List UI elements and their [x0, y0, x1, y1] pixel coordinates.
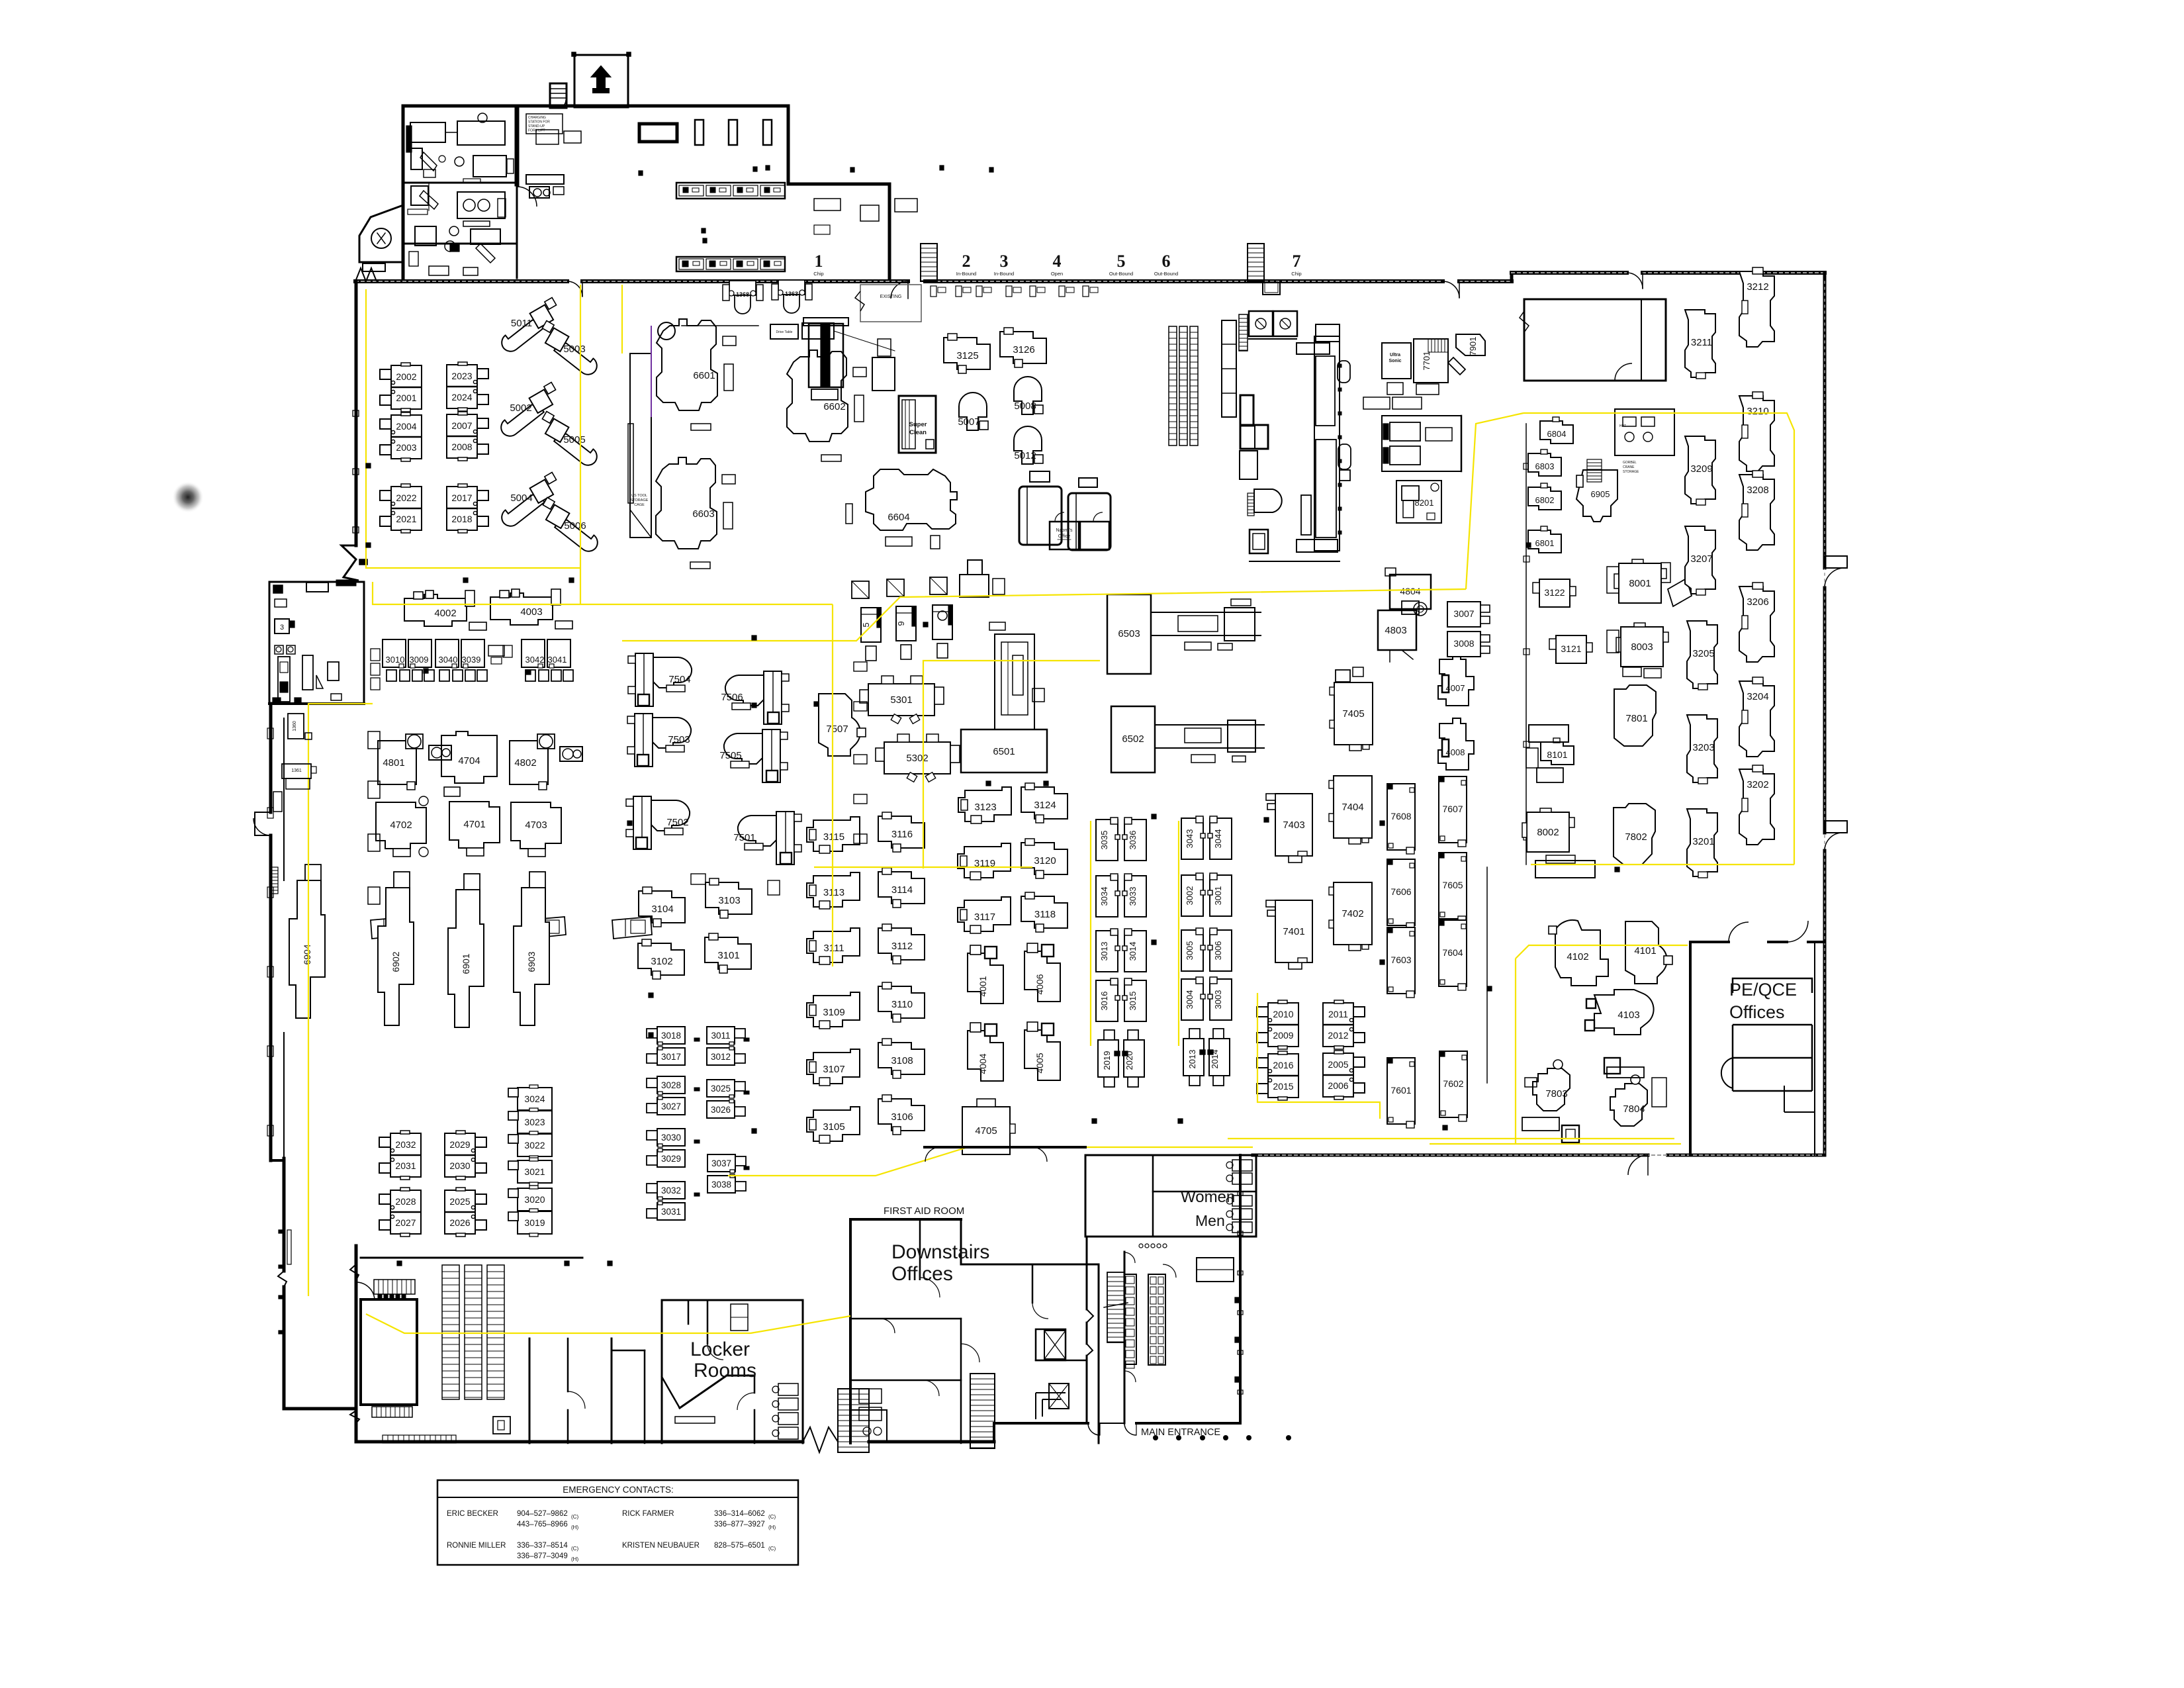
svg-text:3103: 3103: [718, 895, 740, 906]
svg-text:4702: 4702: [390, 820, 412, 831]
svg-text:3020: 3020: [524, 1194, 545, 1205]
svg-text:4802: 4802: [514, 757, 536, 769]
svg-text:(H): (H): [571, 1556, 578, 1562]
svg-text:3030: 3030: [661, 1133, 681, 1143]
svg-text:3: 3: [1000, 252, 1009, 271]
svg-text:7603: 7603: [1390, 955, 1411, 965]
svg-text:5002: 5002: [510, 402, 531, 414]
svg-text:3025: 3025: [711, 1084, 731, 1094]
svg-text:3118: 3118: [1034, 909, 1056, 920]
svg-text:5007: 5007: [958, 416, 979, 428]
svg-text:2004: 2004: [396, 421, 416, 432]
svg-text:2008: 2008: [451, 442, 472, 452]
svg-text:Out-Bound: Out-Bound: [1109, 271, 1133, 277]
svg-text:3024: 3024: [524, 1094, 545, 1104]
svg-text:3117: 3117: [974, 912, 995, 923]
svg-text:3205: 3205: [1692, 648, 1714, 659]
svg-text:3210: 3210: [1747, 406, 1768, 417]
svg-text:2031: 2031: [395, 1160, 416, 1171]
svg-text:2022: 2022: [396, 492, 416, 503]
svg-text:Open: Open: [1051, 271, 1063, 277]
svg-text:4006: 4006: [1034, 974, 1045, 994]
svg-text:3038: 3038: [711, 1180, 731, 1190]
svg-text:(H): (H): [571, 1524, 578, 1530]
svg-text:(H): (H): [768, 1524, 776, 1530]
svg-text:2024: 2024: [451, 392, 472, 402]
svg-text:2016: 2016: [1273, 1060, 1293, 1070]
svg-text:(C): (C): [571, 1546, 578, 1552]
svg-text:4701: 4701: [463, 819, 485, 830]
svg-text:7401: 7401: [1283, 926, 1304, 937]
svg-text:(C): (C): [768, 1546, 776, 1552]
svg-text:3001: 3001: [1213, 886, 1223, 906]
svg-text:3108: 3108: [891, 1055, 913, 1066]
svg-text:4007: 4007: [1446, 683, 1465, 693]
svg-text:3011: 3011: [711, 1031, 730, 1041]
svg-text:Out-Bound: Out-Bound: [1154, 271, 1178, 277]
svg-text:5: 5: [861, 622, 871, 627]
svg-text:6903: 6903: [526, 951, 537, 972]
svg-text:3022: 3022: [524, 1140, 545, 1150]
svg-text:EXISTING: EXISTING: [880, 295, 902, 299]
svg-text:5011: 5011: [511, 318, 532, 329]
svg-text:FIRST AID ROOM: FIRST AID ROOM: [884, 1205, 964, 1217]
svg-text:6601: 6601: [693, 370, 715, 381]
svg-text:6902: 6902: [390, 951, 401, 972]
svg-text:4101: 4101: [1634, 945, 1656, 957]
svg-text:5008: 5008: [1014, 400, 1036, 412]
svg-text:5003: 5003: [563, 344, 585, 355]
svg-text:2007: 2007: [451, 420, 472, 431]
svg-text:Naomi's: Naomi's: [1056, 528, 1073, 533]
svg-text:6: 6: [1162, 252, 1171, 271]
svg-text:Chip: Chip: [1291, 271, 1301, 277]
svg-text:3010: 3010: [386, 655, 405, 665]
svg-text:3110: 3110: [891, 999, 913, 1010]
svg-text:STATION FOR: STATION FOR: [528, 120, 550, 124]
svg-text:3114: 3114: [891, 884, 913, 896]
svg-text:EMERGENCY CONTACTS:: EMERGENCY CONTACTS:: [563, 1485, 674, 1495]
svg-text:3044: 3044: [1213, 829, 1223, 849]
svg-text:3009: 3009: [410, 655, 429, 665]
svg-text:3211: 3211: [1691, 337, 1712, 348]
svg-text:336–877–3049: 336–877–3049: [517, 1552, 568, 1560]
svg-text:3111: 3111: [823, 943, 844, 954]
svg-text:3203: 3203: [1692, 742, 1714, 753]
svg-text:4705: 4705: [975, 1125, 997, 1137]
svg-text:4002: 4002: [434, 608, 456, 619]
svg-text:7803: 7803: [1545, 1088, 1567, 1100]
svg-text:7804: 7804: [1623, 1103, 1645, 1115]
svg-text:7405: 7405: [1342, 708, 1364, 720]
svg-text:In-Bound: In-Bound: [956, 271, 976, 277]
svg-text:3006: 3006: [1213, 941, 1223, 961]
svg-text:3033: 3033: [1128, 887, 1138, 906]
svg-text:2: 2: [962, 252, 971, 271]
svg-text:7506: 7506: [721, 692, 743, 703]
svg-text:3124: 3124: [1034, 800, 1056, 811]
svg-text:7501: 7501: [733, 832, 755, 843]
svg-text:7403: 7403: [1283, 820, 1304, 831]
svg-text:3002: 3002: [1185, 886, 1195, 906]
svg-text:2013: 2013: [1187, 1050, 1197, 1069]
svg-text:3012: 3012: [711, 1052, 731, 1062]
svg-text:3029: 3029: [661, 1154, 681, 1164]
svg-text:3034: 3034: [1099, 887, 1109, 906]
svg-text:2001: 2001: [396, 393, 416, 403]
svg-text:3109: 3109: [823, 1007, 844, 1018]
svg-text:3104: 3104: [651, 904, 673, 915]
svg-text:Drive Table: Drive Table: [776, 330, 793, 334]
svg-text:2014: 2014: [1210, 1050, 1220, 1069]
svg-text:2006: 2006: [1328, 1080, 1348, 1091]
svg-text:4008: 4008: [1446, 747, 1465, 757]
svg-text:3209: 3209: [1690, 463, 1712, 475]
svg-text:CRANE: CRANE: [1623, 465, 1635, 469]
svg-text:4001: 4001: [978, 976, 988, 996]
svg-text:MAIN ENTRANCE: MAIN ENTRANCE: [1141, 1427, 1220, 1438]
svg-text:7404: 7404: [1342, 802, 1363, 813]
svg-text:7504: 7504: [668, 674, 690, 685]
svg-text:In-Bound: In-Bound: [994, 271, 1014, 277]
svg-text:5006: 5006: [564, 520, 586, 532]
svg-text:3016: 3016: [1099, 992, 1109, 1011]
svg-text:2027: 2027: [395, 1217, 416, 1228]
svg-text:828–575–6501: 828–575–6501: [714, 1542, 765, 1550]
svg-text:Super: Super: [909, 421, 927, 428]
svg-text:5012: 5012: [1014, 450, 1036, 461]
svg-text:336–877–3927: 336–877–3927: [714, 1521, 765, 1528]
svg-text:4004: 4004: [978, 1053, 988, 1074]
svg-text:6603: 6603: [692, 508, 714, 520]
svg-text:6802: 6802: [1535, 495, 1555, 505]
svg-text:3005: 3005: [1185, 941, 1195, 961]
svg-text:3004: 3004: [1185, 990, 1195, 1009]
svg-text:3207: 3207: [1690, 553, 1712, 565]
svg-text:RONNIE MILLER: RONNIE MILLER: [447, 1542, 506, 1550]
svg-text:4102: 4102: [1567, 951, 1588, 962]
svg-text:3042: 3042: [525, 655, 545, 665]
svg-text:7802: 7802: [1625, 831, 1647, 843]
svg-text:3031: 3031: [661, 1207, 681, 1217]
svg-text:3202: 3202: [1747, 779, 1768, 790]
svg-text:4804: 4804: [1400, 586, 1420, 596]
svg-text:2025: 2025: [449, 1196, 470, 1207]
svg-text:7605: 7605: [1442, 880, 1463, 890]
svg-text:2010: 2010: [1273, 1009, 1293, 1019]
svg-text:Sonic: Sonic: [1388, 359, 1401, 363]
svg-text:7606: 7606: [1390, 886, 1411, 897]
svg-text:336–337–8514: 336–337–8514: [517, 1542, 568, 1550]
svg-text:3032: 3032: [661, 1186, 681, 1196]
svg-text:1: 1: [815, 252, 823, 271]
svg-text:2012: 2012: [1328, 1030, 1348, 1041]
svg-text:RICK FARMER: RICK FARMER: [622, 1510, 674, 1518]
svg-text:3: 3: [280, 624, 284, 632]
svg-text:8101: 8101: [1547, 749, 1567, 760]
svg-text:2015: 2015: [1273, 1081, 1293, 1092]
svg-text:6604: 6604: [887, 512, 909, 523]
svg-text:3019: 3019: [524, 1217, 545, 1228]
svg-text:3041: 3041: [548, 655, 567, 665]
svg-text:7608: 7608: [1390, 811, 1411, 821]
svg-text:3113: 3113: [823, 887, 844, 898]
svg-text:3026: 3026: [711, 1105, 731, 1115]
svg-text:2011: 2011: [1328, 1009, 1348, 1019]
svg-text:STORAGE: STORAGE: [1623, 470, 1639, 474]
svg-text:3035: 3035: [1099, 831, 1109, 850]
svg-text:5301: 5301: [890, 694, 912, 706]
svg-text:8001: 8001: [1629, 578, 1651, 589]
svg-text:3121: 3121: [1561, 643, 1581, 654]
svg-text:3107: 3107: [823, 1064, 844, 1075]
svg-text:7701: 7701: [1422, 352, 1432, 371]
svg-text:6804: 6804: [1547, 429, 1567, 439]
svg-text:7503: 7503: [668, 734, 690, 745]
svg-text:5004: 5004: [510, 492, 532, 504]
svg-text:KRISTEN NEUBAUER: KRISTEN NEUBAUER: [622, 1542, 700, 1550]
svg-text:3040: 3040: [439, 655, 458, 665]
svg-text:3013: 3013: [1099, 942, 1109, 961]
svg-text:6503: 6503: [1118, 628, 1140, 639]
svg-text:9: 9: [896, 621, 906, 626]
svg-text:2002: 2002: [396, 371, 416, 382]
svg-text:Locker: Locker: [690, 1338, 750, 1360]
svg-text:4: 4: [1053, 252, 1062, 271]
svg-text:7507: 7507: [826, 724, 848, 735]
svg-text:5005: 5005: [563, 434, 585, 445]
svg-text:8003: 8003: [1631, 641, 1653, 653]
svg-text:6501: 6501: [993, 746, 1015, 757]
svg-text:Women: Women: [1181, 1188, 1235, 1206]
svg-text:3105: 3105: [823, 1121, 844, 1133]
svg-text:3007: 3007: [1453, 608, 1474, 619]
svg-text:1360: 1360: [293, 721, 297, 731]
svg-text:2021: 2021: [396, 514, 416, 524]
svg-text:7601: 7601: [1390, 1085, 1411, 1096]
svg-text:6502: 6502: [1122, 733, 1144, 745]
svg-text:2017: 2017: [451, 492, 472, 503]
svg-text:CAGE: CAGE: [634, 503, 645, 507]
svg-text:HPT: HPT: [1619, 424, 1626, 428]
svg-text:3008: 3008: [1453, 638, 1474, 649]
svg-text:Offices: Offices: [1729, 1002, 1785, 1022]
svg-text:2018: 2018: [451, 514, 472, 524]
svg-text:2003: 2003: [396, 442, 416, 453]
svg-text:3102: 3102: [651, 956, 672, 967]
svg-text:3123: 3123: [974, 802, 996, 813]
svg-text:Clean: Clean: [909, 429, 927, 436]
svg-text:2009: 2009: [1273, 1030, 1293, 1041]
svg-text:443–765–8966: 443–765–8966: [517, 1521, 568, 1528]
svg-text:Men: Men: [1195, 1212, 1225, 1229]
svg-text:3120: 3120: [1034, 855, 1056, 867]
svg-text:3043: 3043: [1185, 829, 1195, 849]
svg-text:3201: 3201: [1692, 836, 1714, 847]
svg-text:4704: 4704: [458, 755, 480, 767]
svg-text:(C): (C): [768, 1514, 776, 1520]
svg-text:Rooms: Rooms: [694, 1360, 756, 1382]
svg-text:7604: 7604: [1442, 947, 1463, 958]
svg-text:3014: 3014: [1128, 942, 1138, 961]
svg-text:1361: 1361: [291, 769, 302, 773]
svg-text:8002: 8002: [1537, 827, 1559, 838]
svg-text:3037: 3037: [711, 1158, 731, 1168]
svg-text:2019: 2019: [1102, 1051, 1112, 1070]
svg-text:(C): (C): [571, 1514, 578, 1520]
svg-text:7402: 7402: [1342, 908, 1363, 919]
svg-text:6803: 6803: [1535, 461, 1555, 471]
svg-text:CHARGING: CHARGING: [528, 116, 546, 120]
svg-text:3018: 3018: [661, 1031, 681, 1041]
svg-text:3116: 3116: [891, 829, 913, 840]
svg-text:4803: 4803: [1385, 625, 1406, 636]
svg-text:3039: 3039: [462, 655, 481, 665]
svg-text:3021: 3021: [524, 1166, 545, 1177]
svg-text:7602: 7602: [1443, 1078, 1463, 1089]
svg-text:3115: 3115: [823, 831, 844, 843]
svg-text:8201: 8201: [1415, 498, 1434, 508]
svg-text:7505: 7505: [719, 750, 741, 761]
svg-text:4703: 4703: [525, 820, 547, 831]
svg-text:5302: 5302: [906, 753, 928, 764]
svg-text:6801: 6801: [1535, 538, 1555, 548]
svg-text:3023: 3023: [524, 1117, 545, 1127]
svg-text:3204: 3204: [1747, 691, 1768, 702]
svg-text:2005: 2005: [1328, 1059, 1348, 1070]
svg-text:3101: 3101: [717, 950, 739, 961]
svg-text:STAND-UP: STAND-UP: [528, 124, 545, 128]
svg-text:7: 7: [1293, 252, 1301, 271]
svg-text:1368: 1368: [736, 291, 749, 298]
svg-text:3028: 3028: [661, 1080, 681, 1090]
svg-text:3112: 3112: [891, 941, 913, 952]
svg-text:2020: 2020: [1124, 1051, 1134, 1070]
svg-text:904–527–9862: 904–527–9862: [517, 1510, 568, 1518]
svg-text:7901: 7901: [1468, 337, 1478, 356]
svg-text:6602: 6602: [823, 401, 845, 412]
svg-text:Offices: Offices: [891, 1263, 953, 1285]
svg-text:6901: 6901: [461, 953, 471, 974]
svg-text:7801: 7801: [1625, 713, 1647, 724]
svg-text:6905: 6905: [1591, 489, 1610, 499]
svg-text:2032: 2032: [395, 1139, 416, 1150]
svg-text:2028: 2028: [395, 1196, 416, 1207]
svg-text:3125: 3125: [956, 350, 978, 361]
svg-text:3212: 3212: [1747, 281, 1768, 293]
svg-text:3106: 3106: [891, 1111, 913, 1123]
svg-text:2029: 2029: [449, 1139, 470, 1150]
svg-text:3126: 3126: [1013, 344, 1034, 355]
svg-text:336–314–6062: 336–314–6062: [714, 1510, 765, 1518]
svg-text:Chip: Chip: [813, 271, 823, 277]
svg-text:Downstairs: Downstairs: [891, 1241, 989, 1263]
svg-text:4801: 4801: [383, 757, 404, 769]
svg-text:3003: 3003: [1213, 990, 1223, 1009]
svg-text:2030: 2030: [449, 1160, 470, 1171]
svg-text:1363: 1363: [785, 291, 798, 297]
svg-text:3027: 3027: [661, 1102, 681, 1111]
svg-text:4103: 4103: [1617, 1009, 1639, 1021]
svg-text:GORBEL: GORBEL: [1623, 461, 1637, 465]
svg-text:6904: 6904: [302, 944, 312, 964]
svg-text:3208: 3208: [1747, 485, 1768, 496]
svg-text:7607: 7607: [1442, 804, 1463, 814]
svg-text:Ultra: Ultra: [1390, 353, 1400, 357]
svg-text:PE/QCE: PE/QCE: [1729, 980, 1797, 1000]
svg-text:3206: 3206: [1747, 596, 1768, 608]
svg-text:2023: 2023: [451, 371, 472, 381]
svg-text:5: 5: [1117, 252, 1126, 271]
svg-text:3017: 3017: [661, 1052, 681, 1062]
svg-text:4003: 4003: [520, 606, 542, 618]
svg-text:ERIC BECKER: ERIC BECKER: [447, 1510, 498, 1518]
svg-text:3015: 3015: [1128, 992, 1138, 1011]
svg-text:3036: 3036: [1128, 831, 1138, 850]
svg-text:4005: 4005: [1034, 1053, 1045, 1073]
svg-text:3122: 3122: [1544, 587, 1565, 598]
svg-text:7502: 7502: [666, 817, 688, 828]
svg-text:2026: 2026: [449, 1217, 470, 1228]
